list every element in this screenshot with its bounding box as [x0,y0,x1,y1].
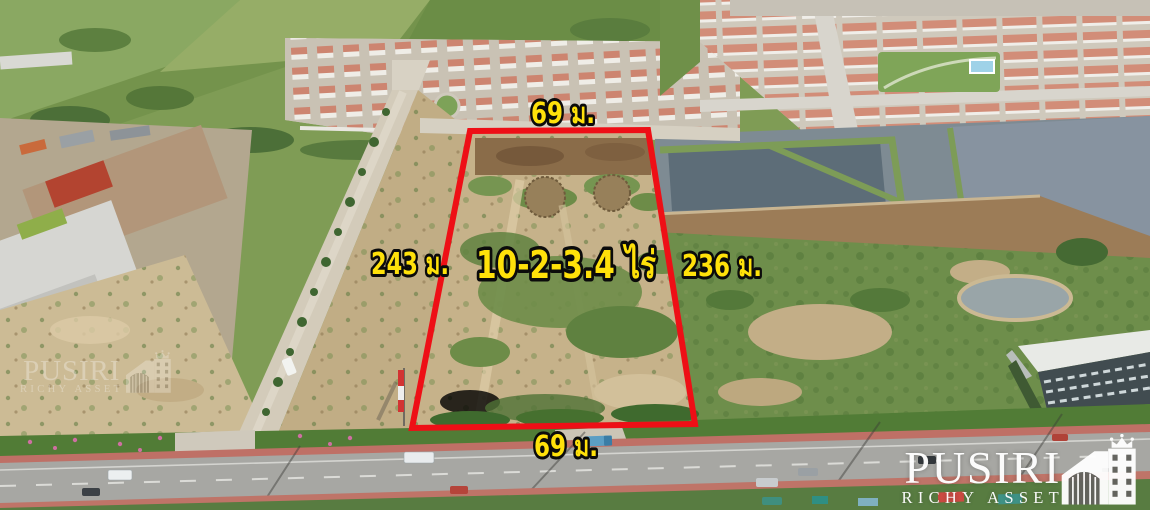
area-label: 10-2-3.4 ไร่ [476,243,656,287]
aerial-photo: 69 ม. 243 ม. 10-2-3.4 ไร่ 236 ม. 69 ม. [0,0,1150,510]
aerial-listing-screenshot: 69 ม. 243 ม. 10-2-3.4 ไร่ 236 ม. 69 ม. P… [0,0,1150,510]
right-depth-label: 236 ม. [682,249,762,284]
bottom-width-label: 69 ม. [534,429,598,463]
top-width-label: 69 ม. [531,96,595,130]
left-depth-label: 243 ม. [371,247,449,282]
